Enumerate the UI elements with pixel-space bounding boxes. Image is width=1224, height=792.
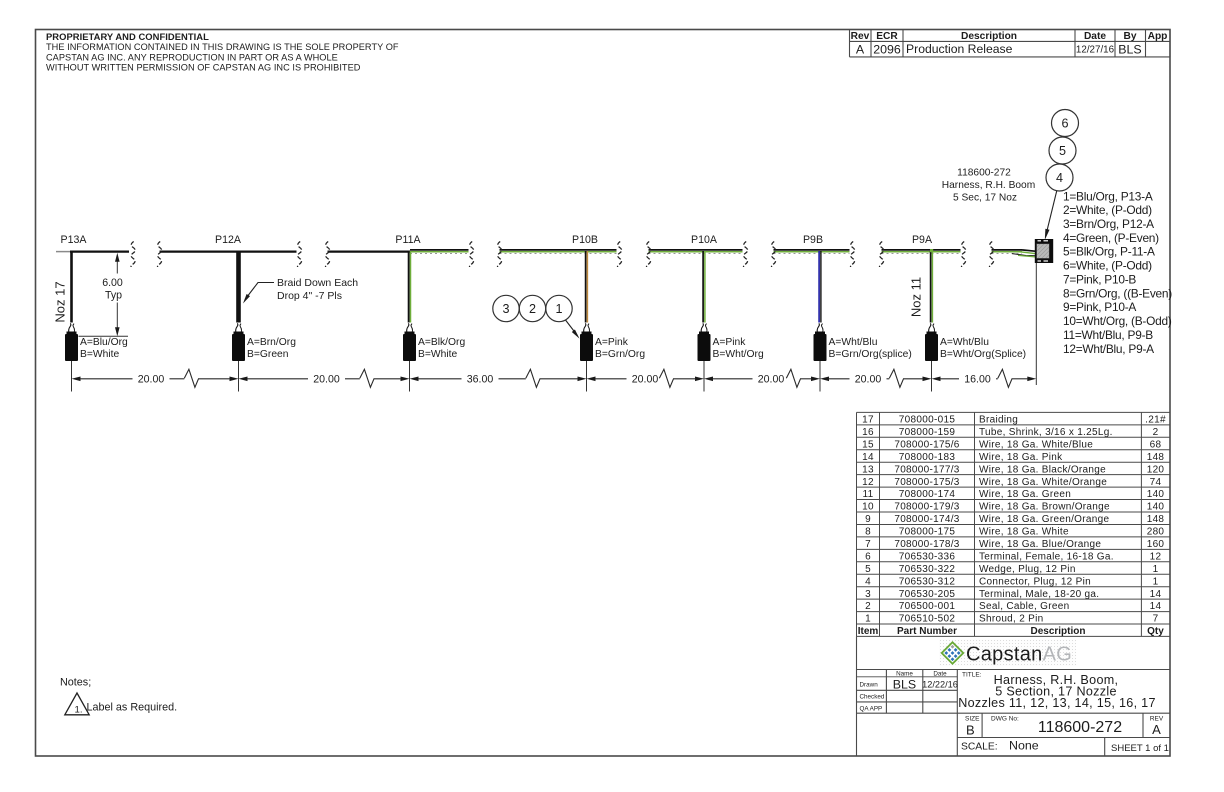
svg-text:Part Number: Part Number	[897, 626, 957, 637]
svg-text:App: App	[1148, 31, 1168, 42]
svg-text:68: 68	[1150, 439, 1162, 450]
svg-text:2: 2	[865, 601, 871, 612]
svg-text:A=Wht/Blu: A=Wht/Blu	[940, 337, 989, 348]
svg-text:QA APP: QA APP	[860, 705, 883, 712]
svg-text:A=Blu/Org: A=Blu/Org	[80, 337, 128, 348]
svg-text:7: 7	[865, 539, 871, 550]
svg-text:708000-175/3: 708000-175/3	[894, 477, 959, 488]
svg-text:708000-177/3: 708000-177/3	[894, 464, 959, 475]
svg-text:DWG No:: DWG No:	[991, 716, 1019, 723]
svg-text:Drop 4" -7 Pls: Drop 4" -7 Pls	[277, 290, 342, 302]
svg-text:Noz 17: Noz 17	[53, 281, 68, 322]
svg-text:9: 9	[865, 514, 871, 525]
svg-text:5 Sec, 17 Noz: 5 Sec, 17 Noz	[953, 192, 1017, 203]
svg-text:ECR: ECR	[876, 31, 898, 42]
svg-text:1: 1	[1153, 564, 1159, 575]
svg-text:5: 5	[1059, 144, 1066, 158]
svg-text:12: 12	[862, 477, 874, 488]
svg-text:15: 15	[862, 439, 874, 450]
svg-text:Wedge, Plug, 12 Pin: Wedge, Plug, 12 Pin	[979, 564, 1076, 575]
svg-text:20.00: 20.00	[138, 374, 165, 386]
svg-text:SHEET 1 of 1: SHEET 1 of 1	[1111, 743, 1169, 754]
svg-text:Noz 11: Noz 11	[909, 277, 924, 317]
svg-text:12: 12	[1150, 551, 1162, 562]
svg-text:Typ: Typ	[105, 290, 122, 302]
svg-text:36.00: 36.00	[467, 374, 494, 386]
svg-text:708000-174: 708000-174	[899, 489, 956, 500]
svg-text:Qty: Qty	[1147, 626, 1164, 637]
svg-text:P9A: P9A	[912, 234, 933, 246]
svg-text:1: 1	[555, 302, 562, 316]
svg-text:74: 74	[1150, 477, 1162, 488]
svg-text:P12A: P12A	[215, 234, 242, 246]
svg-text:A: A	[856, 42, 865, 56]
svg-text:Wire, 18 Ga. Green/Orange: Wire, 18 Ga. Green/Orange	[979, 514, 1109, 525]
svg-text:4=Green, (P-Even): 4=Green, (P-Even)	[1063, 231, 1159, 245]
svg-text:None: None	[1009, 739, 1039, 753]
svg-text:Wire, 18 Ga. Brown/Orange: Wire, 18 Ga. Brown/Orange	[979, 502, 1110, 513]
svg-text:Wire, 18 Ga. White/Blue: Wire, 18 Ga. White/Blue	[979, 439, 1093, 450]
svg-text:A=Pink: A=Pink	[713, 337, 747, 348]
svg-text:Rev: Rev	[851, 31, 870, 42]
svg-text:Date: Date	[933, 671, 947, 678]
svg-text:708000-175/6: 708000-175/6	[894, 439, 959, 450]
svg-text:Terminal, Male, 18-20 ga.: Terminal, Male, 18-20 ga.	[979, 589, 1099, 600]
svg-text:120: 120	[1147, 464, 1165, 475]
svg-text:708000-174/3: 708000-174/3	[894, 514, 959, 525]
svg-text:Connector, Plug, 12 Pin: Connector, Plug, 12 Pin	[979, 576, 1091, 587]
svg-text:WITHOUT WRITTEN PERMISSION OF: WITHOUT WRITTEN PERMISSION OF CAPSTAN AG…	[46, 63, 361, 73]
svg-text:12/22/16: 12/22/16	[922, 679, 958, 689]
svg-text:Nozzles 11, 12, 13, 14, 15, 16: Nozzles 11, 12, 13, 14, 15, 16, 17	[958, 696, 1156, 710]
svg-text:Description: Description	[961, 31, 1017, 42]
svg-text:14: 14	[862, 452, 874, 463]
svg-text:14: 14	[1150, 589, 1162, 600]
svg-text:A=Blk/Org: A=Blk/Org	[418, 337, 465, 348]
svg-text:2=White, (P-Odd): 2=White, (P-Odd)	[1063, 203, 1152, 217]
svg-text:140: 140	[1147, 502, 1165, 513]
svg-text:708000-183: 708000-183	[899, 452, 956, 463]
svg-text:16: 16	[862, 427, 874, 438]
svg-text:5: 5	[865, 564, 871, 575]
svg-text:Item: Item	[858, 626, 879, 637]
svg-text:6=White, (P-Odd): 6=White, (P-Odd)	[1063, 259, 1152, 273]
svg-text:16.00: 16.00	[964, 374, 991, 386]
svg-text:Wire, 18 Ga. Green: Wire, 18 Ga. Green	[979, 489, 1071, 500]
svg-text:7=Pink, P10-B: 7=Pink, P10-B	[1063, 273, 1136, 287]
svg-text:3=Brn/Org, P12-A: 3=Brn/Org, P12-A	[1063, 217, 1154, 231]
svg-text:Wire, 18 Ga. Pink: Wire, 18 Ga. Pink	[979, 452, 1063, 463]
svg-text:10=Wht/Org, (B-Odd): 10=Wht/Org, (B-Odd)	[1063, 314, 1172, 328]
svg-text:Date: Date	[1084, 31, 1106, 42]
svg-text:4: 4	[1056, 171, 1063, 185]
svg-text:12/27/16: 12/27/16	[1076, 45, 1115, 56]
svg-text:P9B: P9B	[803, 234, 823, 246]
svg-text:P10B: P10B	[572, 234, 598, 246]
svg-text:P10A: P10A	[691, 234, 718, 246]
svg-text:THE INFORMATION CONTAINED IN T: THE INFORMATION CONTAINED IN THIS DRAWIN…	[46, 42, 399, 52]
svg-text:708000-159: 708000-159	[899, 427, 956, 438]
svg-text:TITLE:: TITLE:	[962, 672, 982, 679]
svg-text:11=Wht/Blu, P9-B: 11=Wht/Blu, P9-B	[1063, 328, 1153, 342]
svg-text:B=White: B=White	[80, 349, 119, 360]
svg-text:A: A	[1152, 722, 1161, 737]
svg-text:.21#: .21#	[1145, 415, 1166, 426]
svg-text:8: 8	[865, 527, 871, 538]
svg-text:P13A: P13A	[61, 234, 88, 246]
svg-text:B=Grn/Org: B=Grn/Org	[595, 349, 645, 360]
svg-text:1=Blu/Org, P13-A: 1=Blu/Org, P13-A	[1063, 189, 1153, 203]
svg-text:708000-179/3: 708000-179/3	[894, 502, 959, 513]
svg-text:12=Wht/Blu, P9-A: 12=Wht/Blu, P9-A	[1063, 342, 1154, 356]
svg-text:1: 1	[865, 614, 871, 625]
svg-text:Seal, Cable, Green: Seal, Cable, Green	[979, 601, 1069, 612]
svg-text:3: 3	[502, 302, 509, 316]
svg-text:706530-205: 706530-205	[899, 589, 956, 600]
svg-text:5=Blk/Org, P-11-A: 5=Blk/Org, P-11-A	[1063, 245, 1155, 259]
svg-text:Braiding: Braiding	[979, 415, 1018, 426]
svg-text:BLS: BLS	[1118, 42, 1141, 56]
svg-text:706500-001: 706500-001	[899, 601, 956, 612]
svg-text:708000-015: 708000-015	[899, 415, 956, 426]
svg-text:Drawn: Drawn	[860, 682, 879, 689]
svg-text:160: 160	[1147, 539, 1165, 550]
svg-text:SCALE:: SCALE:	[961, 742, 998, 753]
svg-text:706530-322: 706530-322	[899, 564, 956, 575]
svg-text:Braid Down Each: Braid Down Each	[277, 277, 358, 289]
svg-text:706530-336: 706530-336	[899, 551, 956, 562]
svg-text:By: By	[1123, 31, 1136, 42]
svg-text:Notes;: Notes;	[60, 677, 91, 689]
svg-text:6.00: 6.00	[102, 277, 123, 289]
svg-text:20.00: 20.00	[758, 374, 785, 386]
svg-text:8=Grn/Org, ((B-Even): 8=Grn/Org, ((B-Even)	[1063, 286, 1172, 300]
svg-text:Harness, R.H. Boom: Harness, R.H. Boom	[942, 180, 1035, 191]
svg-text:Wire, 18 Ga. Blue/Orange: Wire, 18 Ga. Blue/Orange	[979, 539, 1101, 550]
svg-text:2: 2	[529, 302, 536, 316]
svg-text:20.00: 20.00	[632, 374, 659, 386]
svg-text:P11A: P11A	[395, 234, 421, 246]
svg-text:118600-272: 118600-272	[1038, 719, 1122, 736]
svg-text:CapstanAG: CapstanAG	[966, 643, 1072, 665]
svg-text:B=White: B=White	[418, 349, 457, 360]
svg-text:20.00: 20.00	[313, 374, 340, 386]
svg-text:17: 17	[862, 415, 874, 426]
svg-text:6: 6	[1061, 117, 1068, 131]
svg-text:708000-178/3: 708000-178/3	[894, 539, 959, 550]
svg-text:Wire, 18 Ga. White/Orange: Wire, 18 Ga. White/Orange	[979, 477, 1107, 488]
svg-text:BLS: BLS	[893, 677, 916, 691]
svg-text:14: 14	[1150, 601, 1162, 612]
svg-text:2096: 2096	[873, 42, 901, 56]
svg-text:A=Pink: A=Pink	[595, 337, 629, 348]
svg-text:2: 2	[1153, 427, 1159, 438]
svg-text:Checked: Checked	[860, 694, 885, 701]
svg-text:3: 3	[865, 589, 871, 600]
svg-text:20.00: 20.00	[855, 374, 882, 386]
svg-text:708000-175: 708000-175	[899, 527, 956, 538]
svg-text:118600-272: 118600-272	[957, 168, 1011, 179]
svg-text:SIZE: SIZE	[965, 716, 980, 723]
svg-text:Shroud, 2 Pin: Shroud, 2 Pin	[979, 614, 1044, 625]
svg-text:Terminal, Female, 16-18 Ga.: Terminal, Female, 16-18 Ga.	[979, 551, 1114, 562]
svg-text:B=Wht/Org: B=Wht/Org	[713, 349, 764, 360]
svg-text:Tube, Shrink, 3/16 x 1.25Lg.: Tube, Shrink, 3/16 x 1.25Lg.	[979, 427, 1113, 438]
svg-text:Description: Description	[1030, 626, 1085, 637]
svg-text:148: 148	[1147, 452, 1165, 463]
svg-text:9=Pink, P10-A: 9=Pink, P10-A	[1063, 300, 1136, 314]
svg-text:Label as Required.: Label as Required.	[87, 701, 178, 713]
svg-text:11: 11	[863, 489, 874, 500]
svg-text:PROPRIETARY AND CONFIDENTIAL: PROPRIETARY AND CONFIDENTIAL	[46, 31, 209, 42]
svg-text:1: 1	[1153, 576, 1159, 587]
svg-text:13: 13	[862, 464, 874, 475]
svg-text:706510-502: 706510-502	[899, 614, 956, 625]
svg-text:B=Green: B=Green	[247, 349, 289, 360]
svg-text:Production Release: Production Release	[906, 42, 1013, 56]
svg-text:7: 7	[1153, 614, 1159, 625]
svg-text:6: 6	[865, 551, 871, 562]
svg-text:1.: 1.	[74, 704, 82, 715]
svg-text:CAPSTAN AG INC. ANY REPRODUCTI: CAPSTAN AG INC. ANY REPRODUCTION IN PART…	[46, 52, 338, 62]
svg-text:A=Wht/Blu: A=Wht/Blu	[829, 337, 878, 348]
svg-text:4: 4	[865, 576, 871, 587]
svg-text:A=Brn/Org: A=Brn/Org	[247, 337, 296, 348]
svg-text:B: B	[966, 723, 975, 738]
svg-text:B=Wht/Org(Splice): B=Wht/Org(Splice)	[940, 349, 1026, 360]
svg-text:280: 280	[1147, 527, 1165, 538]
svg-text:706530-312: 706530-312	[899, 576, 956, 587]
svg-text:B=Grn/Org(splice): B=Grn/Org(splice)	[829, 349, 912, 360]
svg-text:Wire, 18 Ga. White: Wire, 18 Ga. White	[979, 527, 1069, 538]
svg-text:10: 10	[862, 502, 874, 513]
svg-text:148: 148	[1147, 514, 1165, 525]
svg-text:Wire, 18 Ga. Black/Orange: Wire, 18 Ga. Black/Orange	[979, 464, 1106, 475]
svg-text:140: 140	[1147, 489, 1165, 500]
